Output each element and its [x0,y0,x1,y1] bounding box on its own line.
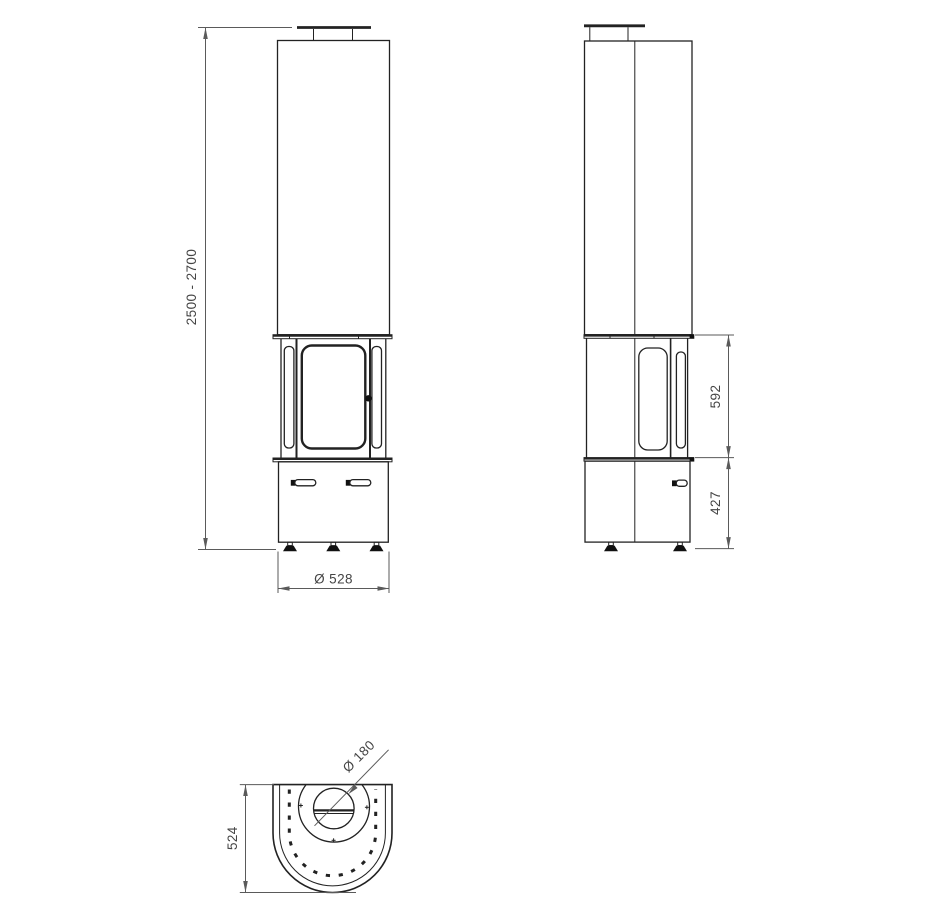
air-vent-handle [672,480,687,486]
plan-depth-dimension: 524 [225,785,356,893]
front-top-plate [273,335,392,339]
side-body-cylinder [585,41,693,335]
arrow-up-icon [726,458,731,470]
side-glass-window [639,348,667,450]
base-box [585,461,690,542]
front-firebox [281,339,386,458]
foot-pad [283,546,297,552]
side-firebox-height-dimension: 592 [695,335,734,458]
drawing-canvas: 2500 - 2700 [0,0,940,918]
arrow-right-icon [378,586,390,591]
arrow-down-icon [243,881,248,893]
side-firebox-height-label: 592 [708,385,723,409]
air-vent-handle-left [291,480,316,486]
flue-outlet-circle [314,788,355,829]
door-knob [365,395,371,401]
firebox-door-glass [302,346,366,449]
front-height-label: 2500 - 2700 [184,249,199,325]
screw-mark-right [365,805,369,809]
side-base-height-dimension: 427 [695,458,734,549]
top-view: Ø 180 524 [225,737,392,892]
side-glass-right [372,347,382,449]
adjustable-foot [370,542,384,551]
insulation-dashed-line [289,790,375,876]
arrow-left-icon [278,586,290,591]
handle-slot [676,480,687,486]
plan-depth-label: 524 [225,826,240,850]
fireplace-technical-drawing: 2500 - 2700 [0,0,940,918]
side-chimney [584,26,645,41]
front-glass-profile [676,352,685,448]
front-base [279,462,389,551]
handle-slot [295,480,316,486]
adjustable-foot [604,542,618,551]
front-diameter-dimension: Ø 528 [278,552,389,594]
arrow-down-icon [203,538,208,550]
arrow-down-icon [726,446,731,458]
flue-diameter-leader: Ø 180 [315,737,389,825]
front-height-dimension: 2500 - 2700 [184,28,292,550]
foot-pad [370,546,384,552]
air-vent-handle-right [346,480,371,486]
arrow-up-icon [203,28,208,40]
side-base-height-label: 427 [708,491,723,515]
screw-mark-left [299,804,303,808]
flue-diameter-label: Ø 180 [340,737,378,775]
foot-pad [673,546,687,552]
side-top-plate [584,335,694,339]
adjustable-foot [326,542,340,551]
front-chimney [297,28,371,41]
adjustable-foot [673,542,687,551]
plate-end-cap [690,335,694,339]
handle-slot [350,480,371,486]
arrow-up-icon [726,335,731,347]
side-firebox [587,338,688,457]
arrow-down-icon [726,537,731,549]
foot-pad [326,546,340,552]
front-diameter-label: Ø 528 [314,572,353,587]
side-glass-left [284,347,294,449]
base-box [279,462,389,542]
foot-pad [604,546,618,552]
side-base [585,461,690,551]
arrow-up-icon [243,785,248,796]
front-view: 2500 - 2700 [184,28,392,594]
front-body-cylinder [278,41,390,335]
adjustable-foot [283,542,297,551]
side-view: 592 427 [584,26,734,551]
